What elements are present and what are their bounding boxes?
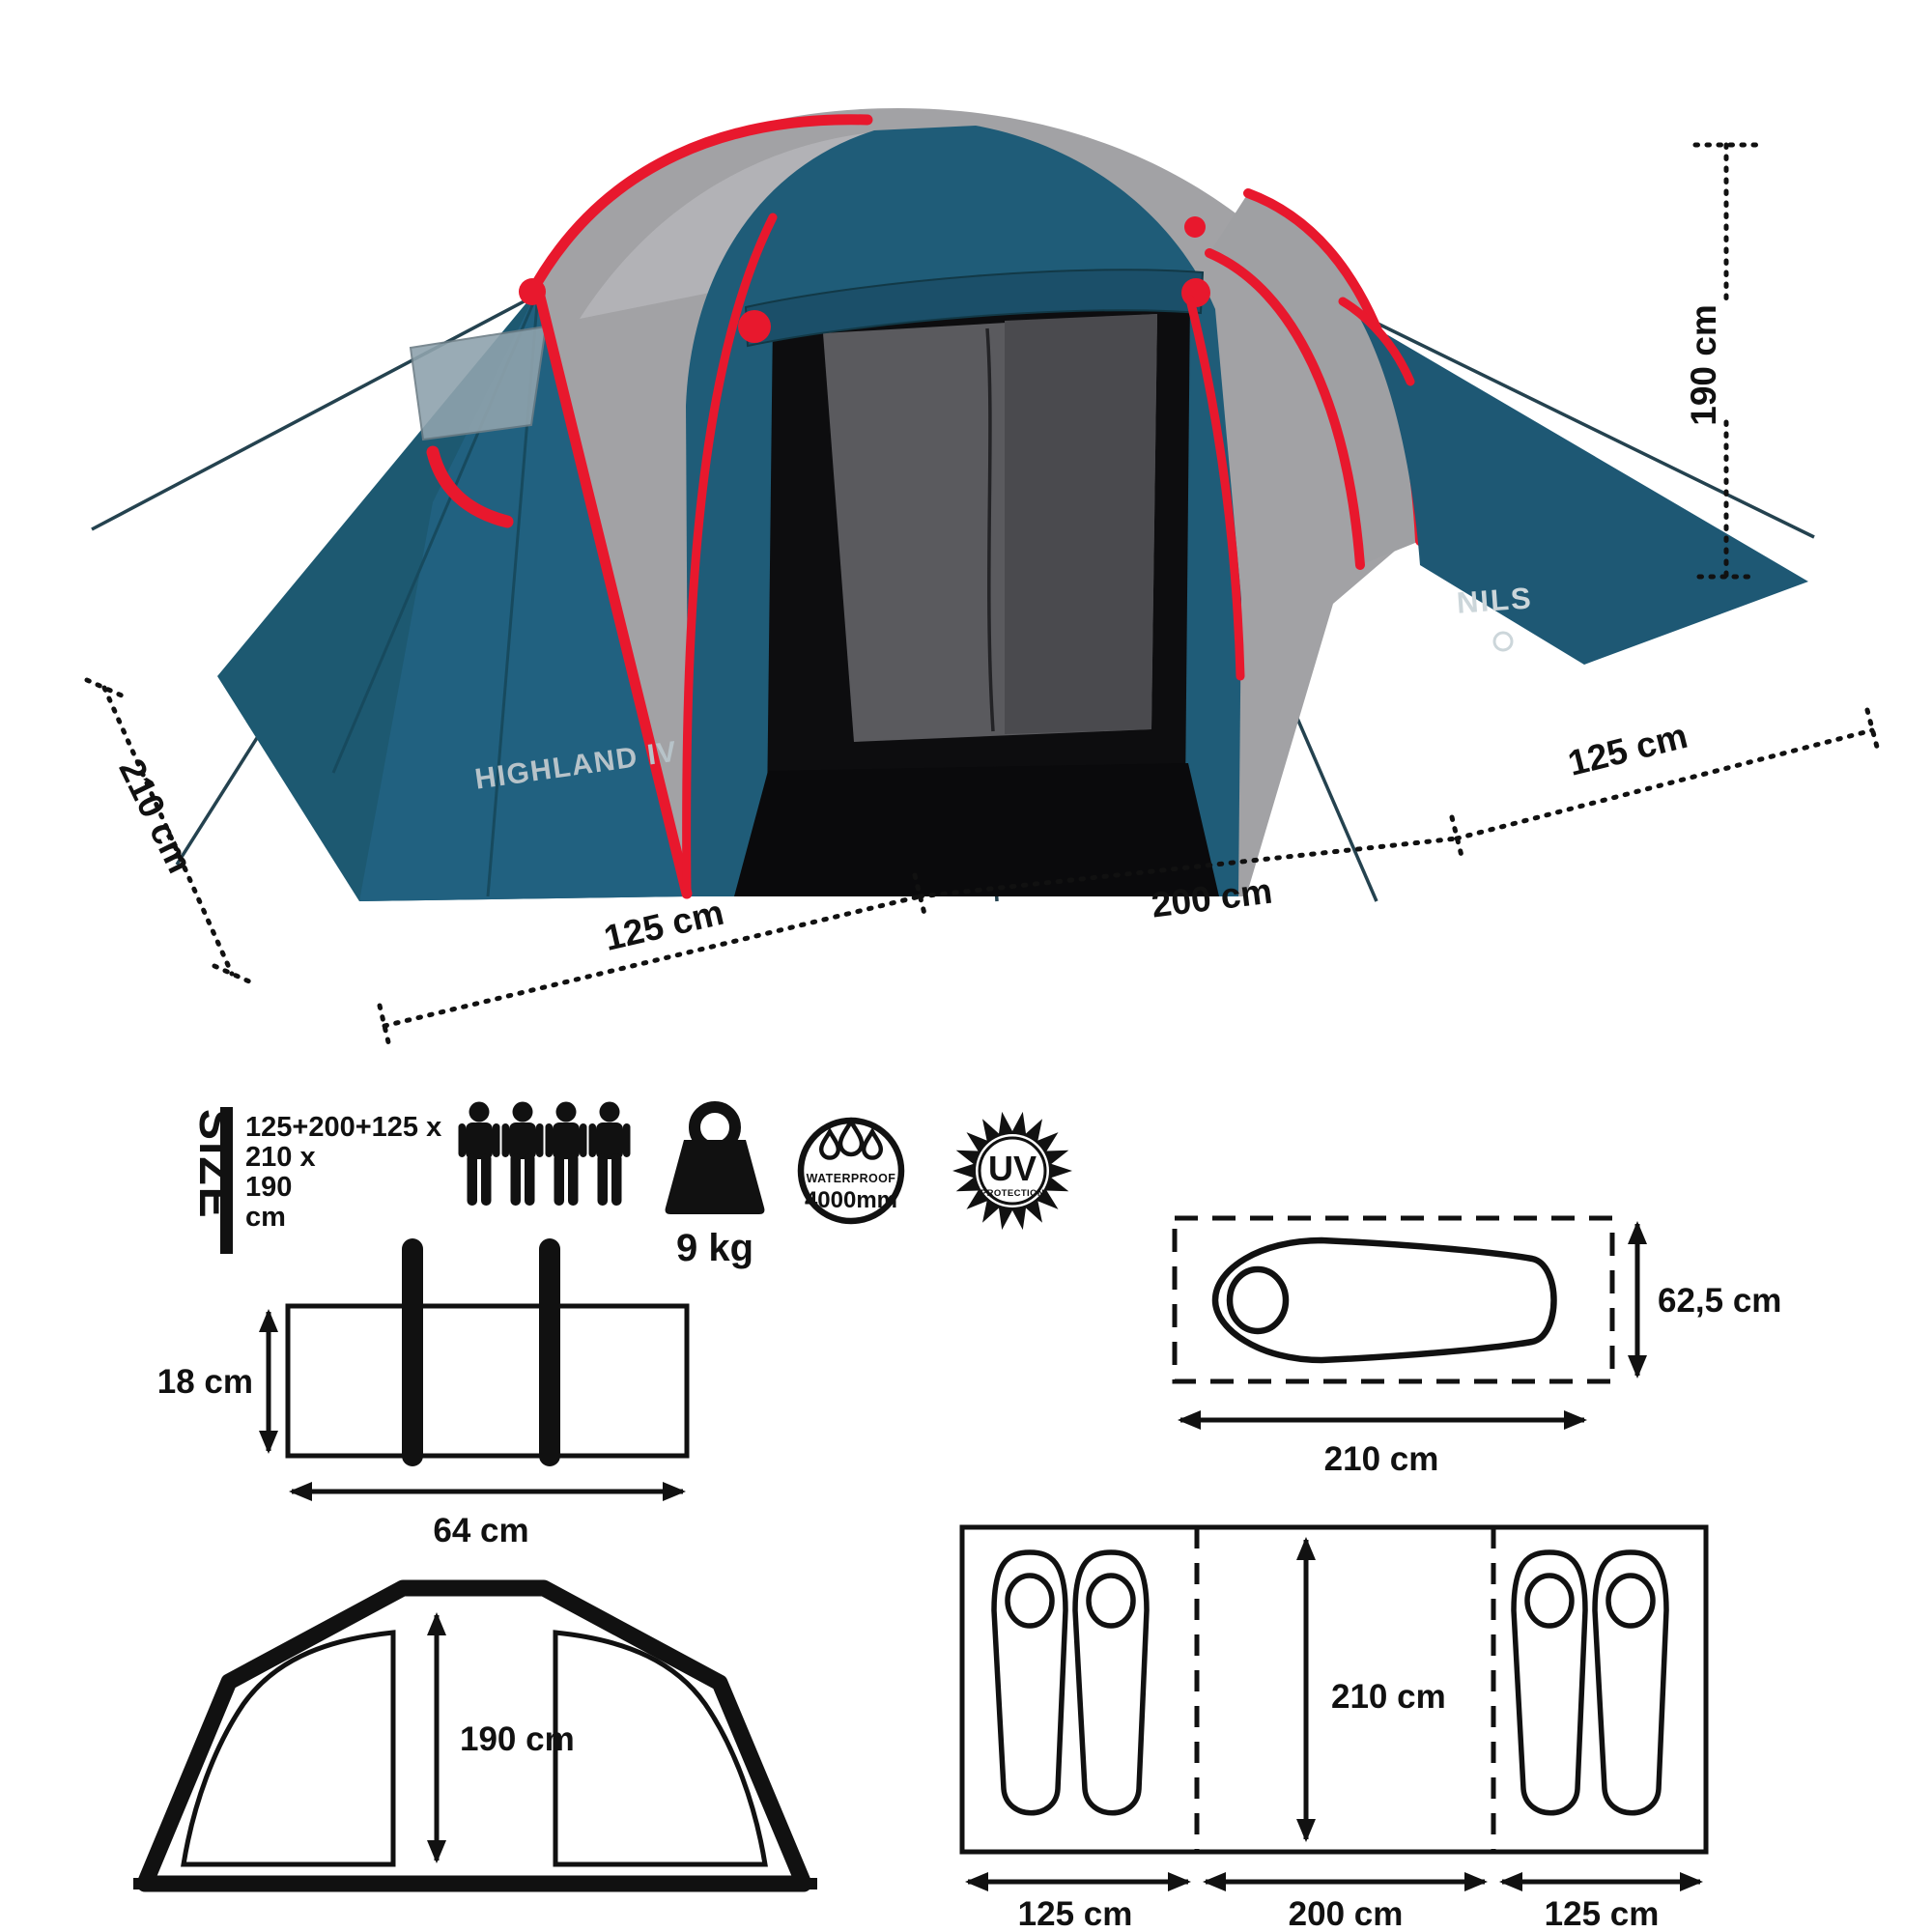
- size-line-2: 210 x: [245, 1142, 316, 1173]
- dim-right-width-label: 125 cm: [1564, 716, 1691, 783]
- pack-strap: [402, 1238, 423, 1466]
- person-icon: [546, 1102, 587, 1207]
- waterproof-value: 4000mm: [805, 1187, 897, 1213]
- uv-title: UV: [988, 1149, 1037, 1188]
- sleeping-bag-icon: [1514, 1552, 1585, 1813]
- floor-plan-diagram: 210 cm 125 cm 200 cm 125 cm: [962, 1527, 1706, 1932]
- ground-line: [133, 1878, 817, 1889]
- size-divider-bar: [220, 1107, 233, 1254]
- pack-width-label: 64 cm: [433, 1512, 528, 1549]
- capacity-icons: [459, 1102, 631, 1207]
- pack-strap: [539, 1238, 560, 1466]
- dim-height-label: 190 cm: [1684, 304, 1723, 426]
- floor-center-room-label: 200 cm: [1289, 1895, 1404, 1932]
- dim-depth-label: 210 cm: [111, 753, 200, 879]
- front-elevation-diagram: 190 cm: [133, 1588, 817, 1889]
- floor-length-label: 210 cm: [1331, 1678, 1446, 1716]
- size-block: SIZE 125+200+125 x 210 x 190 cm: [189, 1107, 441, 1254]
- brand-logo-emblem: [1494, 633, 1512, 650]
- dim-right-width: 125 cm: [1457, 710, 1878, 838]
- person-icon: [589, 1102, 631, 1207]
- uv-subtitle: PROTECTION: [980, 1188, 1044, 1199]
- dim-left-width-label: 125 cm: [600, 893, 727, 958]
- person-icon: [459, 1102, 500, 1207]
- mat-diagram: 62,5 cm 210 cm: [1175, 1218, 1781, 1478]
- floor-right-room-label: 125 cm: [1545, 1895, 1660, 1932]
- size-line-1: 125+200+125 x: [245, 1112, 441, 1143]
- floor-left-room-label: 125 cm: [1018, 1895, 1133, 1932]
- mat-height-label: 62,5 cm: [1658, 1282, 1781, 1320]
- brand-logo-text: NILS: [1456, 581, 1534, 619]
- pack-height-label: 18 cm: [157, 1363, 253, 1401]
- dim-left-width: 125 cm: [380, 893, 920, 1046]
- weight-label: 9 kg: [676, 1227, 753, 1269]
- tent-illustration: NILS HIGHLAND IV: [92, 108, 1814, 901]
- waterproof-badge: WATERPROOF 4000mm: [801, 1121, 901, 1221]
- tent-floor: [734, 763, 1219, 896]
- dim-depth: 210 cm: [87, 680, 249, 981]
- size-heading: SIZE: [189, 1109, 241, 1220]
- tent-right-wedge: NILS: [1343, 301, 1808, 665]
- size-line-4: cm: [245, 1202, 286, 1233]
- waterproof-title: WATERPROOF: [807, 1172, 896, 1185]
- sleeping-bag-icon: [994, 1552, 1065, 1813]
- sleeping-bag-icon: [1215, 1240, 1554, 1360]
- elevation-height-label: 190 cm: [460, 1720, 575, 1758]
- size-line-3: 190: [245, 1172, 292, 1203]
- mat-length-label: 210 cm: [1324, 1440, 1439, 1478]
- sleeping-bag-icon: [1075, 1552, 1147, 1813]
- person-icon: [502, 1102, 544, 1207]
- spec-sheet-svg: NILS HIGHLAND IV 190 cm 125 cm 200 cm: [0, 0, 1932, 1932]
- sleeping-bag-icon: [1595, 1552, 1666, 1813]
- product-spec-sheet: NILS HIGHLAND IV 190 cm 125 cm 200 cm: [0, 0, 1932, 1932]
- weight-block: 9 kg: [666, 1107, 765, 1269]
- dim-height: 190 cm: [1684, 145, 1761, 577]
- pack-size-diagram: 18 cm 64 cm: [157, 1238, 687, 1549]
- tent-front-panel: [686, 126, 1241, 896]
- spec-row: SIZE 125+200+125 x 210 x 190 cm 9 kg WAT…: [189, 1102, 1072, 1270]
- uv-badge: UV PROTECTION: [952, 1112, 1072, 1230]
